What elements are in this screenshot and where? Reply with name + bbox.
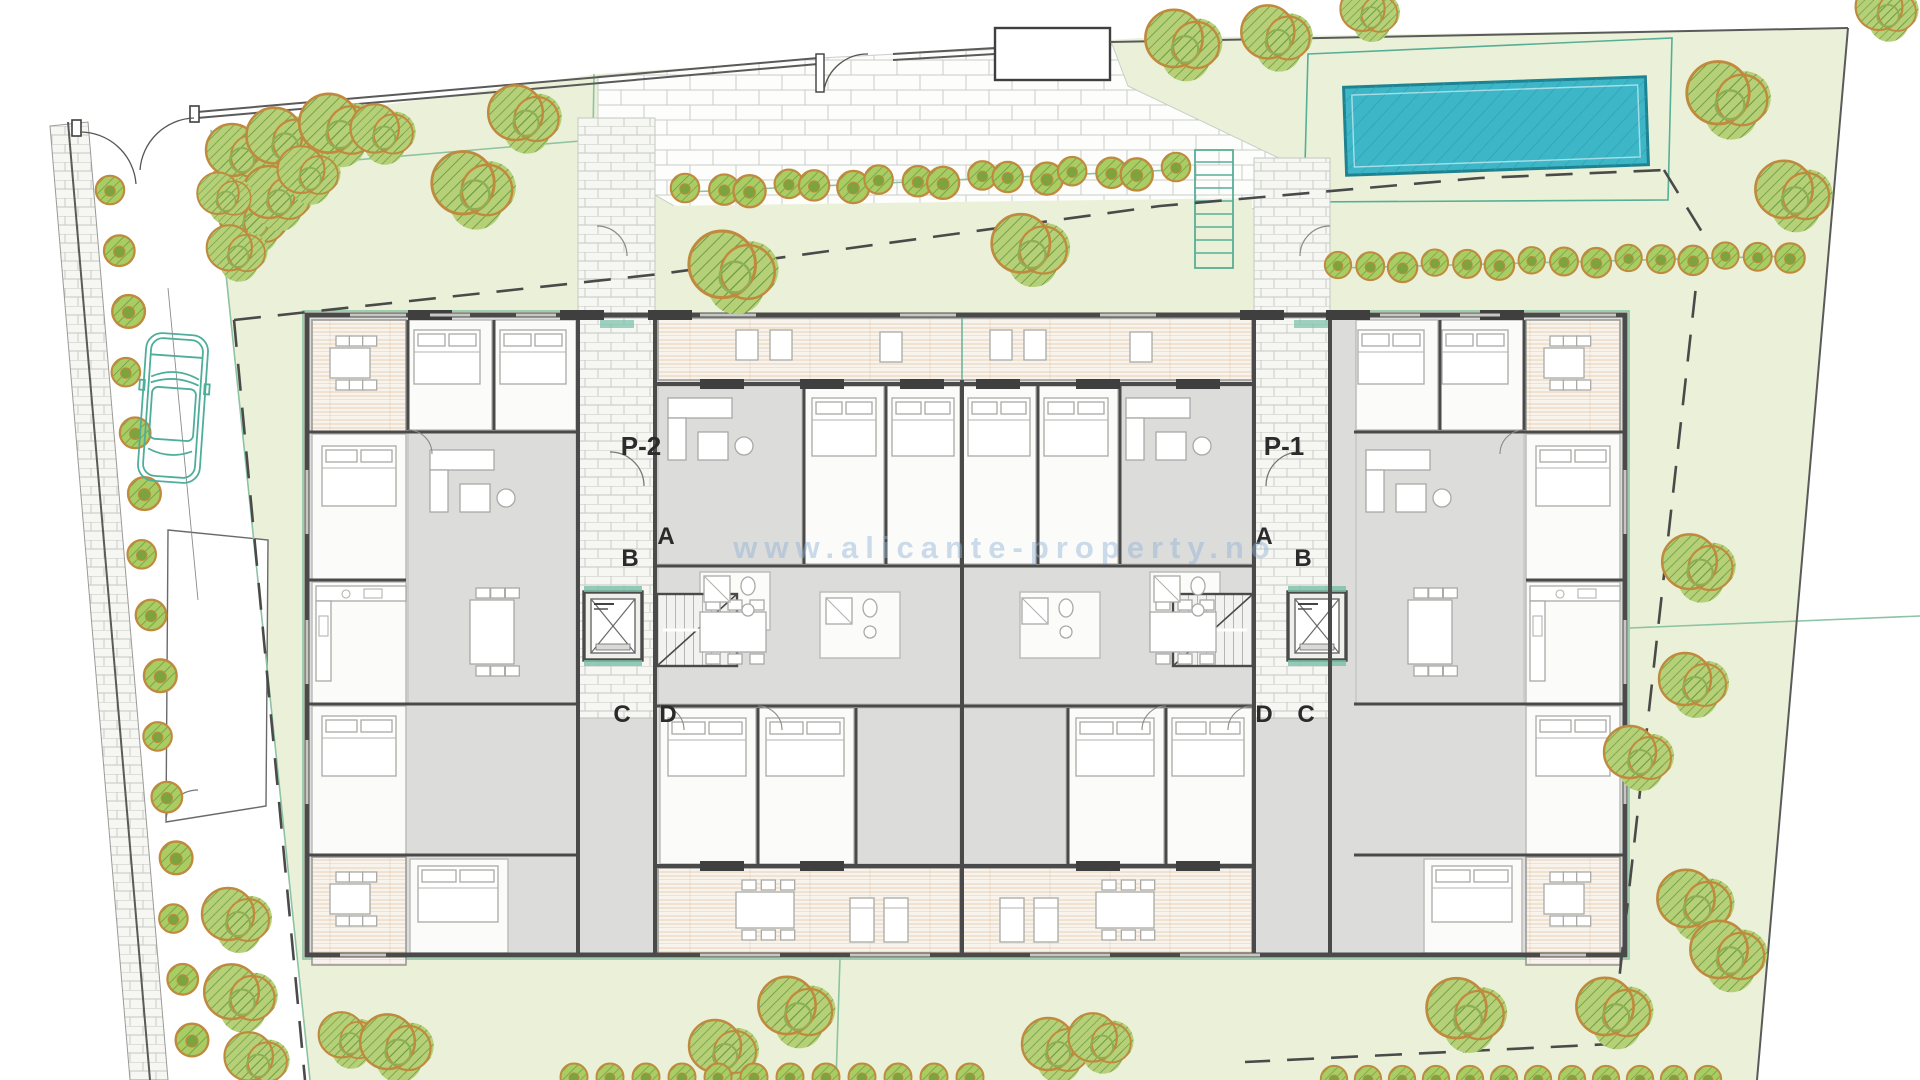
- watermark-text: www.alicante-property.no: [732, 530, 1277, 565]
- unit-label-d-left: D: [659, 701, 676, 728]
- swimming-pool: [1344, 77, 1649, 175]
- car-icon: [133, 332, 213, 485]
- portal-label-right: P-1: [1264, 431, 1304, 461]
- unit-label-d-right: D: [1255, 701, 1272, 728]
- portal-label-left: P-2: [621, 431, 661, 461]
- unit-label-c-left: C: [613, 701, 630, 728]
- site-plan-canvas: P-2 P-1 A B C D A B C D www.alicante-pro…: [0, 0, 1920, 1080]
- unit-label-a-left: A: [657, 523, 674, 550]
- unit-label-b-left: B: [621, 545, 638, 572]
- floor-plan-drawing: P-2 P-1 A B C D A B C D www.alicante-pro…: [0, 0, 1920, 1080]
- unit-label-b-right: B: [1294, 545, 1311, 572]
- apartment-building-floorplan: [307, 310, 1625, 965]
- unit-label-c-right: C: [1297, 701, 1314, 728]
